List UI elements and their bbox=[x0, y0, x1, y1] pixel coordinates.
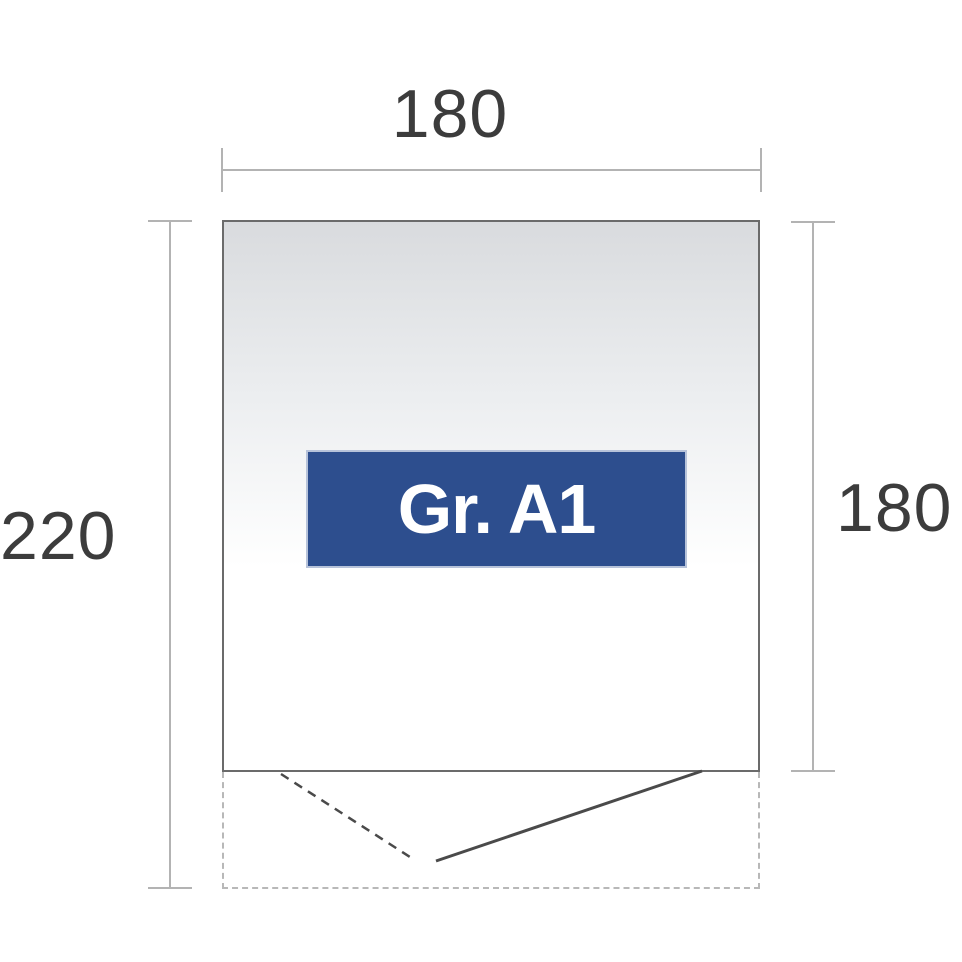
body-depth-dimension-tick-top bbox=[791, 221, 835, 223]
width-dimension-tick-left bbox=[221, 148, 223, 192]
total-depth-dimension-tick-bottom bbox=[148, 887, 192, 889]
width-dimension-tick-right bbox=[760, 148, 762, 192]
width-dimension-line bbox=[222, 169, 762, 171]
total-depth-dimension-tick-top bbox=[148, 220, 192, 222]
body-depth-dimension-label: 180 bbox=[836, 474, 962, 542]
body-depth-dimension-line bbox=[812, 222, 814, 772]
floor-plan-diagram: 180 220 180 Gr. A1 bbox=[0, 0, 962, 962]
total-depth-dimension-label: 220 bbox=[0, 502, 134, 570]
width-dimension-label: 180 bbox=[340, 80, 560, 148]
size-label: Gr. A1 bbox=[306, 450, 687, 568]
door-swing-area bbox=[222, 772, 760, 889]
total-depth-dimension-line bbox=[169, 221, 171, 889]
body-depth-dimension-tick-bottom bbox=[791, 770, 835, 772]
